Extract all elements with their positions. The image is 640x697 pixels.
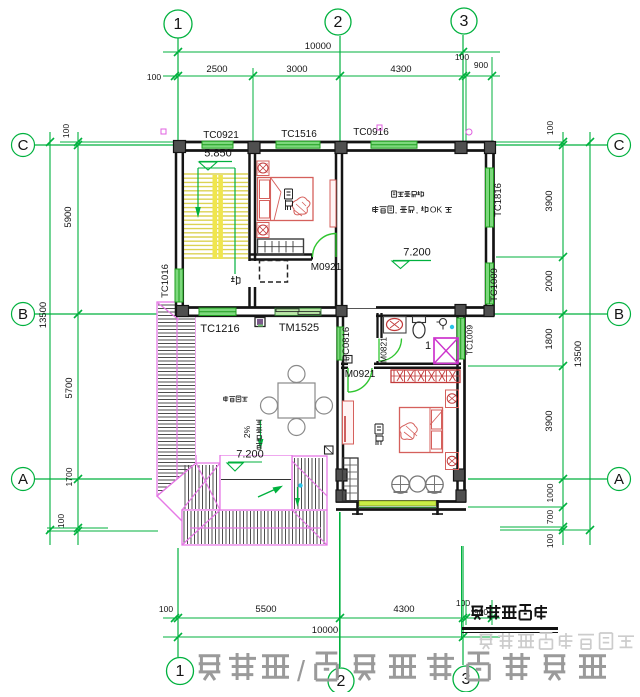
svg-text:1700: 1700 <box>64 467 74 486</box>
svg-text:2: 2 <box>334 14 343 31</box>
svg-text:1800: 1800 <box>544 328 555 349</box>
svg-text:10000: 10000 <box>312 625 338 636</box>
svg-text:TC1009: TC1009 <box>489 268 500 302</box>
svg-text:100: 100 <box>456 598 470 608</box>
svg-text:1: 1 <box>176 663 185 680</box>
svg-text:TM1525: TM1525 <box>279 322 319 334</box>
svg-text:TC0921: TC0921 <box>203 130 239 141</box>
svg-text:,: , <box>395 206 397 215</box>
svg-text:OK: OK <box>430 205 443 215</box>
svg-text:100: 100 <box>545 534 555 548</box>
svg-text:TC1216: TC1216 <box>200 323 239 335</box>
svg-text:,: , <box>416 206 418 215</box>
svg-text:3000: 3000 <box>286 64 307 75</box>
svg-text:M0921: M0921 <box>345 369 376 380</box>
svg-text:1000: 1000 <box>545 483 555 502</box>
svg-text:100: 100 <box>147 72 161 82</box>
svg-text:5500: 5500 <box>255 604 276 615</box>
svg-text:1: 1 <box>174 16 183 33</box>
svg-text:A: A <box>18 471 28 488</box>
svg-text:5700: 5700 <box>64 377 75 398</box>
svg-text:900: 900 <box>474 60 488 70</box>
svg-text:100: 100 <box>56 514 66 528</box>
svg-text:TC1516: TC1516 <box>281 129 317 140</box>
svg-text:C: C <box>614 137 625 154</box>
svg-text:C: C <box>18 137 29 154</box>
svg-text:100: 100 <box>159 604 173 614</box>
svg-text:3: 3 <box>460 13 469 30</box>
svg-text:10000: 10000 <box>305 41 331 52</box>
svg-text:3900: 3900 <box>544 190 555 211</box>
svg-text:2%: 2% <box>242 425 252 438</box>
svg-text:3900: 3900 <box>544 410 555 431</box>
svg-text:4300: 4300 <box>390 64 411 75</box>
svg-text:7.200: 7.200 <box>236 449 264 461</box>
svg-text:100: 100 <box>61 124 71 138</box>
svg-text:700: 700 <box>545 510 555 524</box>
svg-text:1: 1 <box>425 340 431 352</box>
svg-text:5900: 5900 <box>63 206 74 227</box>
svg-text:M0821: M0821 <box>379 337 389 363</box>
svg-text:M0921: M0921 <box>311 262 342 273</box>
svg-text:B: B <box>614 306 624 323</box>
svg-text:13500: 13500 <box>573 341 584 367</box>
svg-text:TC1009: TC1009 <box>465 325 475 356</box>
svg-text:TC0916: TC0916 <box>353 127 389 138</box>
svg-text:13500: 13500 <box>38 302 49 328</box>
svg-text:TC1016: TC1016 <box>160 264 171 298</box>
svg-text:5.850: 5.850 <box>204 148 232 160</box>
svg-text:2000: 2000 <box>544 270 555 291</box>
svg-text:PC0816: PC0816 <box>341 327 352 361</box>
svg-text:100: 100 <box>455 52 469 62</box>
svg-text:/: / <box>297 656 306 688</box>
svg-text:B: B <box>18 306 28 323</box>
svg-text:4300: 4300 <box>393 604 414 615</box>
svg-text:7.200: 7.200 <box>403 247 431 259</box>
svg-text:TC1816: TC1816 <box>493 183 504 217</box>
svg-text:A: A <box>614 471 624 488</box>
svg-text:2500: 2500 <box>206 64 227 75</box>
svg-text:100: 100 <box>545 121 555 135</box>
